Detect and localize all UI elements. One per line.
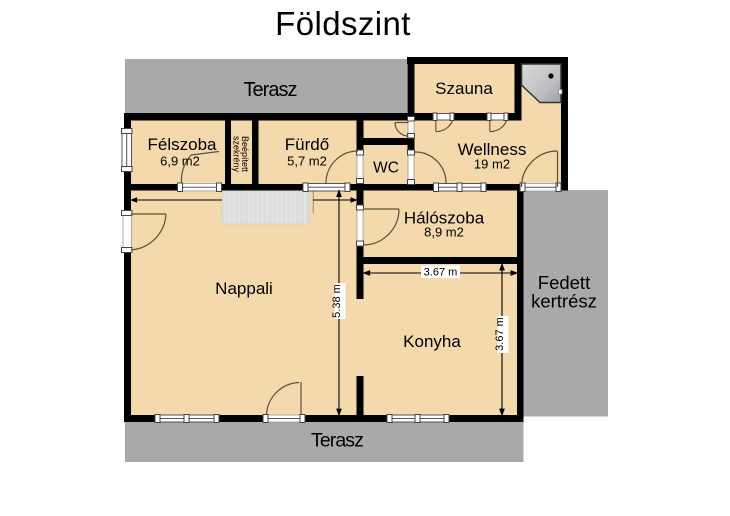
svg-text:8,9 m2: 8,9 m2	[424, 225, 464, 240]
svg-text:3.67 m: 3.67 m	[494, 317, 506, 351]
svg-text:Konyha: Konyha	[403, 332, 461, 351]
svg-text:Nappali: Nappali	[215, 279, 273, 298]
svg-text:Szauna: Szauna	[435, 79, 493, 98]
svg-text:6,9 m2: 6,9 m2	[160, 154, 200, 169]
svg-text:Félszoba: Félszoba	[148, 135, 218, 154]
svg-text:szekrény: szekrény	[232, 136, 242, 173]
svg-text:Fürdő: Fürdő	[285, 135, 329, 154]
svg-text:5,7 m2: 5,7 m2	[287, 154, 327, 169]
svg-text:WC: WC	[373, 160, 399, 177]
svg-text:Földszint: Földszint	[275, 5, 411, 42]
svg-text:5.38 m: 5.38 m	[331, 284, 343, 318]
svg-text:19 m2: 19 m2	[474, 157, 510, 172]
svg-text:3.67 m: 3.67 m	[424, 267, 458, 279]
svg-text:Terasz: Terasz	[311, 430, 363, 452]
svg-text:kertrész: kertrész	[531, 291, 597, 312]
svg-text:Terasz: Terasz	[244, 79, 297, 101]
